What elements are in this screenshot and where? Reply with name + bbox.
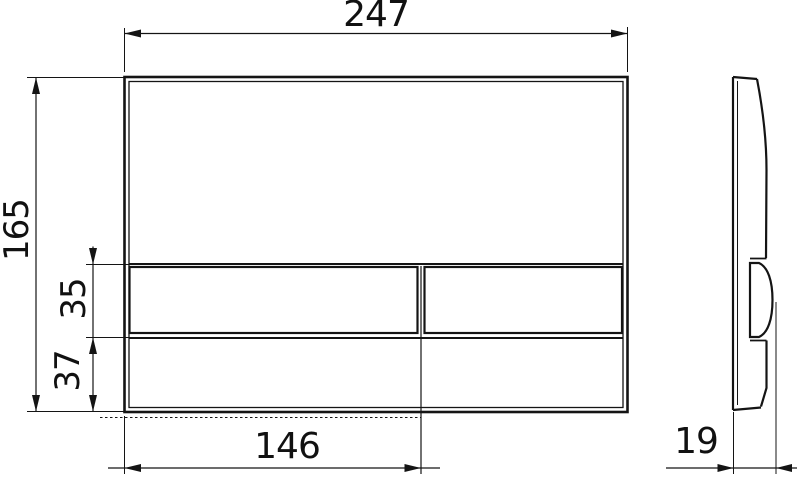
arrowhead-right: [611, 30, 628, 38]
dim-label-plate-depth: 19: [674, 424, 718, 460]
arrowhead-down: [89, 395, 97, 412]
side-front-face-upper: [757, 79, 767, 258]
dim-label-button-row: 35: [57, 278, 91, 319]
arrowhead-inward-right: [718, 464, 734, 472]
side-profile-view: [733, 77, 773, 410]
drawing-linework: [0, 0, 800, 478]
dim-label-plate-width: 247: [343, 0, 409, 33]
dimension-button-row-and-strip: [86, 247, 129, 412]
side-button-profile: [750, 263, 773, 337]
dim-label-plate-height: 165: [0, 199, 34, 261]
arrowhead-down: [32, 395, 40, 412]
arrowhead-up: [89, 338, 97, 355]
small-flush-button: [425, 267, 623, 333]
arrowhead-left: [125, 30, 142, 38]
drawing-canvas: 247 165 35 37 146 19: [0, 0, 800, 478]
arrowhead-left: [125, 464, 142, 472]
large-flush-button: [130, 267, 418, 333]
side-top-edge: [733, 77, 757, 79]
plate-inner-outline: [129, 82, 623, 408]
dim-label-lower-strip: 37: [51, 350, 85, 391]
arrowhead-up: [32, 78, 40, 95]
dim-label-big-button-width: 146: [254, 429, 320, 465]
arrowhead-inward-left: [776, 464, 792, 472]
plate-outer-outline: [125, 77, 628, 412]
arrowhead-down-outside: [89, 248, 97, 265]
side-bottom-edge: [733, 408, 761, 411]
front-view: [125, 77, 628, 412]
side-front-face-lower: [761, 341, 767, 407]
arrowhead-right: [405, 464, 422, 472]
